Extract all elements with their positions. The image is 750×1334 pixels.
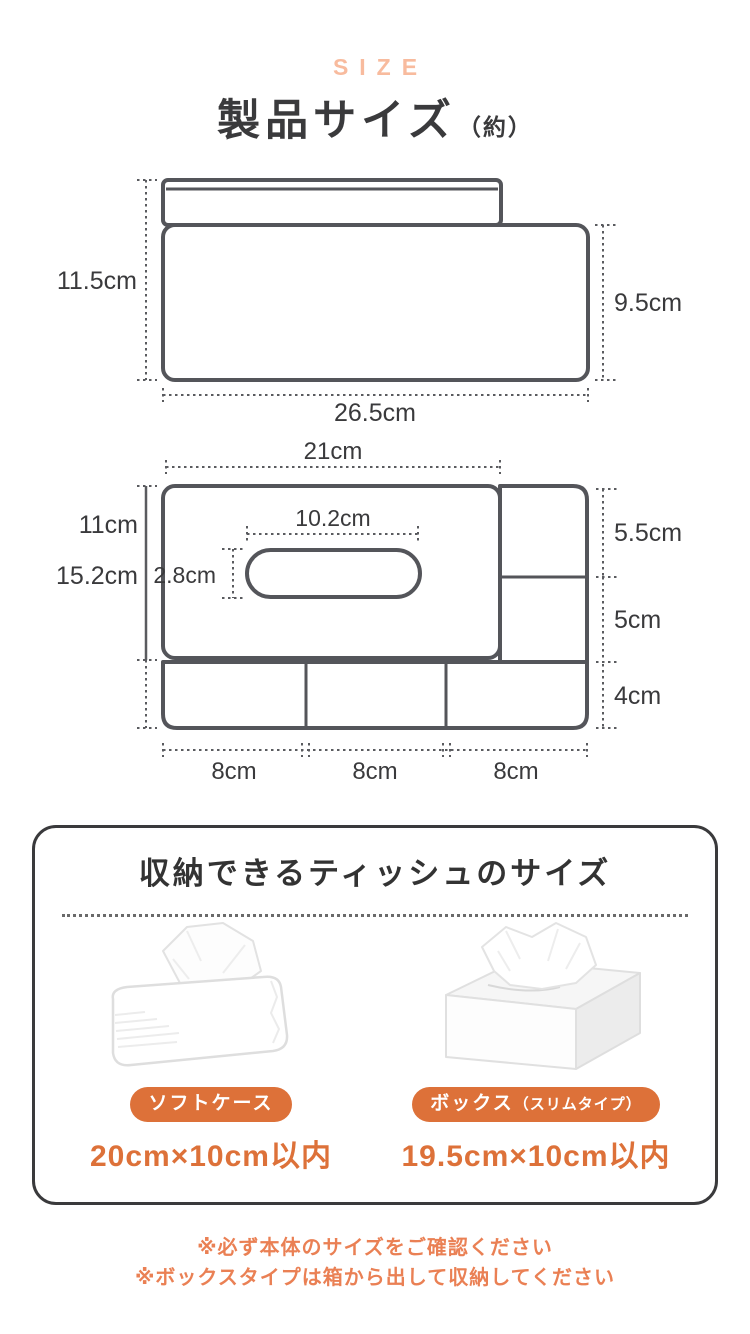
bottom-flap-shape <box>163 662 587 728</box>
tissue-box-illustration <box>406 919 666 1075</box>
side-view-diagram: 11.5cm 9.5cm 26.5cm <box>0 168 750 438</box>
tissue-size-card: 収納できるティッシュのサイズ ソフトケース 20cm×10cm以内 <box>32 825 718 1205</box>
dim-height-body: 9.5cm <box>595 225 682 380</box>
box-type-size: 19.5cm×10cm以内 <box>371 1131 701 1175</box>
tissue-slot-shape <box>247 550 420 597</box>
box-type-badge-note: （スリムタイプ） <box>514 1096 642 1113</box>
soft-case-badge: ソフトケース <box>130 1087 291 1122</box>
footer-notes: ※必ず本体のサイズをご確認ください ※ボックスタイプは箱から出して収納してくださ… <box>0 1233 750 1293</box>
dim-left-heights: 11cm 15.2cm <box>56 486 157 728</box>
box-type-badge: ボックス（スリムタイプ） <box>412 1087 659 1122</box>
page-title: 製品サイズ（約） <box>0 86 750 148</box>
dim-label-slot-height: 2.8cm <box>153 562 216 588</box>
dim-label-height-front: 11cm <box>79 511 138 539</box>
dim-bottom-cells: 8cm 8cm 8cm <box>163 743 587 785</box>
note-line-2: ※ボックスタイプは箱から出して収納してください <box>0 1263 750 1293</box>
dim-label-width-bottom: 26.5cm <box>334 399 416 427</box>
note-line-1: ※必ず本体のサイズをご確認ください <box>0 1233 750 1263</box>
side-panel-shape <box>500 486 587 662</box>
box-type-item: ボックス（スリムタイプ） 19.5cm×10cm以内 <box>371 917 701 1175</box>
soft-case-size: 20cm×10cm以内 <box>51 1131 371 1175</box>
soft-case-item: ソフトケース 20cm×10cm以内 <box>51 917 371 1175</box>
dim-width-bottom: 26.5cm <box>163 388 588 427</box>
dim-label-height-total: 15.2cm <box>56 562 138 590</box>
dim-width-top: 21cm <box>166 440 500 474</box>
dim-label-cell-1: 8cm <box>211 758 256 785</box>
section-eyebrow: SIZE <box>0 54 750 81</box>
soft-pack-image <box>51 919 371 1075</box>
front-view-diagram: 21cm 10.2cm 2.8cm 11cm 15.2cm 5.5cm 5cm … <box>0 440 750 790</box>
case-body-shape <box>163 225 588 380</box>
card-title: 収納できるティッシュのサイズ <box>35 848 715 893</box>
tissue-figures: ソフトケース 20cm×10cm以内 ボックス（スリムタイプ） 19.5cm×1… <box>35 917 715 1175</box>
dim-label-bottom-flap: 4cm <box>614 682 661 710</box>
dim-label-side-middle: 5cm <box>614 606 661 634</box>
dim-label-cell-2: 8cm <box>352 758 397 785</box>
dim-label-height-total: 11.5cm <box>57 267 137 295</box>
soft-pack-illustration <box>81 919 341 1075</box>
dim-label-width-top: 21cm <box>304 440 363 465</box>
dim-label-slot-width: 10.2cm <box>295 505 370 531</box>
dim-label-height-body: 9.5cm <box>614 289 682 317</box>
tissue-box-image <box>371 919 701 1075</box>
dim-label-side-top: 5.5cm <box>614 519 682 547</box>
case-lid-shape <box>163 180 501 225</box>
soft-case-badge-text: ソフトケース <box>148 1093 273 1114</box>
dim-height-total: 11.5cm <box>57 180 157 380</box>
page-title-text: 製品サイズ <box>217 97 456 145</box>
page-title-note: （約） <box>458 114 533 140</box>
box-type-badge-text: ボックス <box>430 1093 513 1114</box>
dim-label-cell-3: 8cm <box>493 758 538 785</box>
dim-right-sections: 5.5cm 5cm 4cm <box>596 489 682 728</box>
